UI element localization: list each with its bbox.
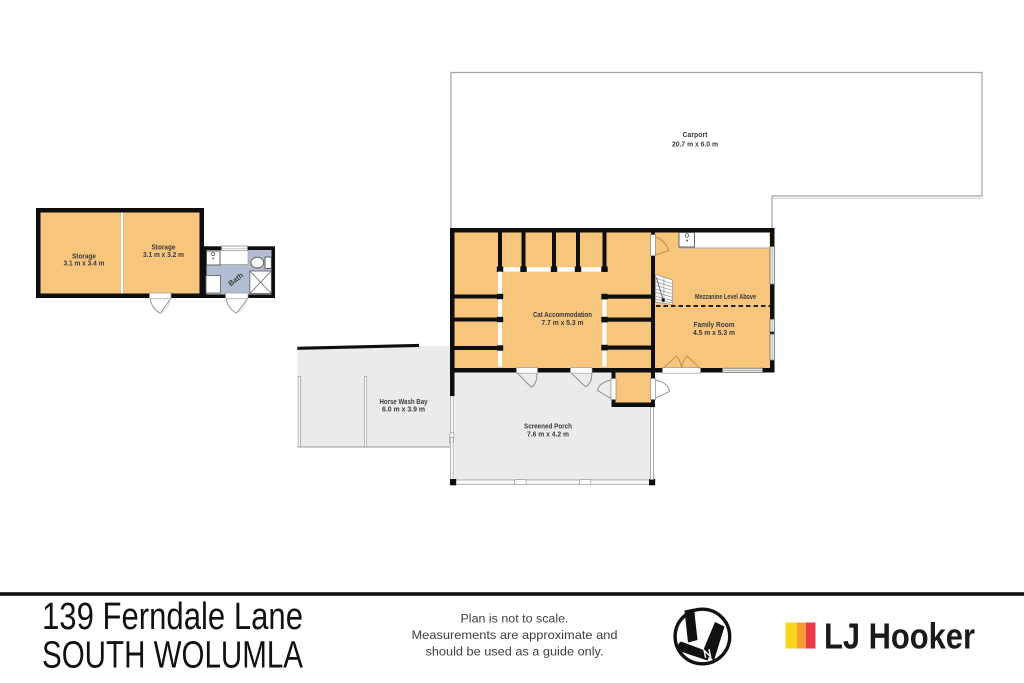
svg-text:should be used as a guide only: should be used as a guide only. [426, 645, 604, 659]
svg-text:LJ Hooker: LJ Hooker [824, 616, 975, 657]
svg-text:6.0 m x 3.9 m: 6.0 m x 3.9 m [382, 405, 425, 414]
svg-text:3.1 m x 3.2 m: 3.1 m x 3.2 m [143, 250, 184, 259]
svg-text:Mezzanine Level Above: Mezzanine Level Above [695, 292, 756, 301]
svg-text:SOUTH WOLUMLA: SOUTH WOLUMLA [42, 635, 303, 677]
svg-text:20.7 m x 6.0 m: 20.7 m x 6.0 m [672, 140, 718, 149]
svg-text:Measurements are approximate a: Measurements are approximate and [412, 628, 618, 642]
svg-text:4.5 m x 5.3 m: 4.5 m x 5.3 m [693, 328, 735, 337]
svg-text:7.6 m x 4.2 m: 7.6 m x 4.2 m [527, 430, 569, 439]
svg-text:7.7 m x 5.3 m: 7.7 m x 5.3 m [542, 318, 584, 327]
svg-text:139 Ferndale Lane: 139 Ferndale Lane [42, 596, 303, 638]
svg-text:3.1 m x 3.4 m: 3.1 m x 3.4 m [64, 259, 105, 268]
svg-text:Carport: Carport [683, 130, 708, 139]
svg-text:Plan is not to scale.: Plan is not to scale. [461, 612, 569, 626]
